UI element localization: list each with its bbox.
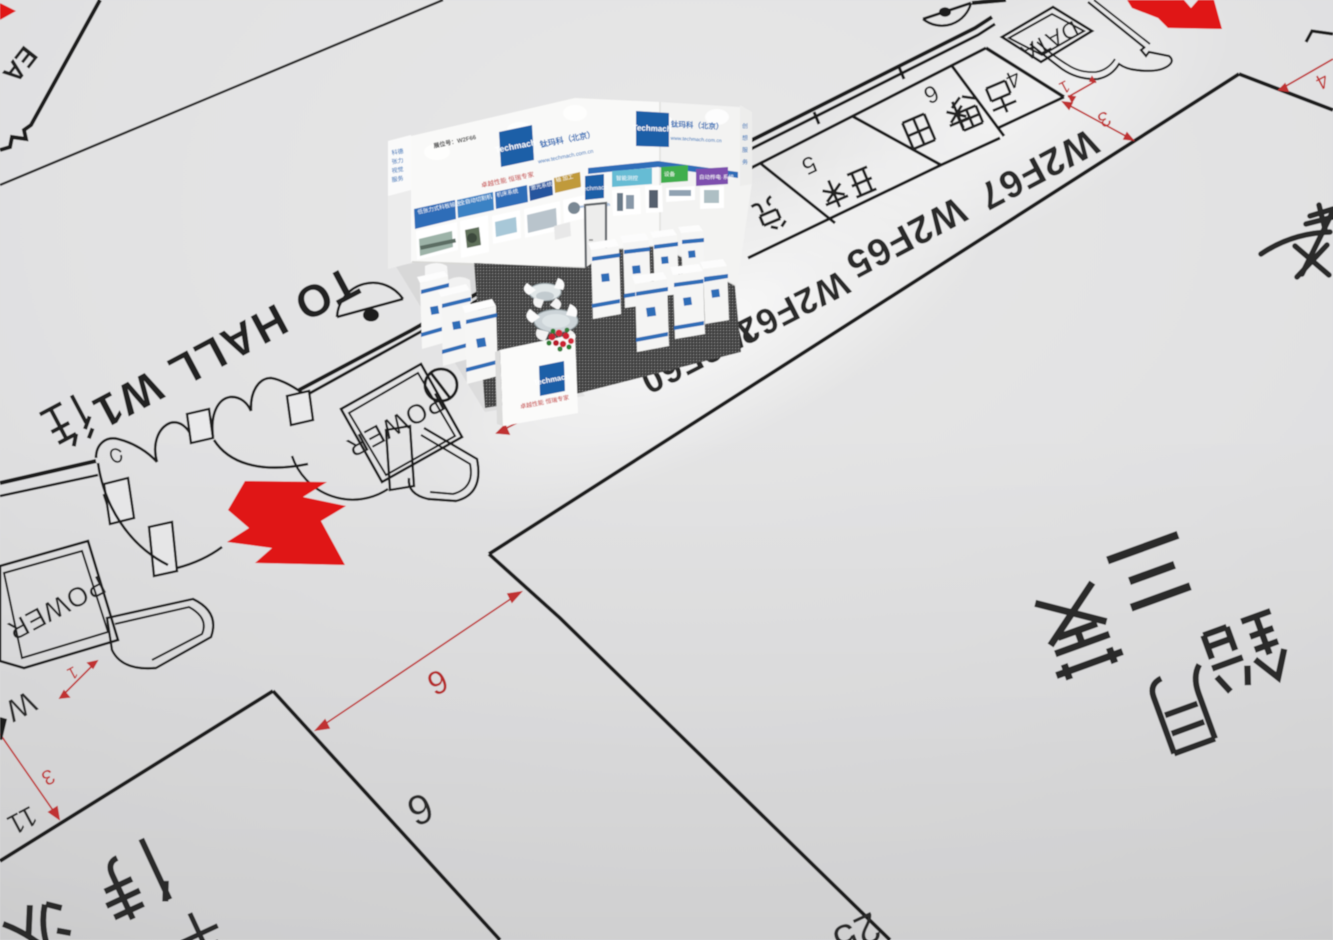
svg-text:创: 创 [742,122,748,130]
svg-text:自动桦电·系统: 自动桦电·系统 [699,174,734,181]
svg-text:务: 务 [742,158,748,166]
svg-text:智能测控: 智能测控 [616,175,639,182]
svg-text:设备: 设备 [664,171,676,178]
svg-text:Techmach: Techmach [632,123,671,133]
svg-text:想: 想 [742,134,748,142]
svg-text:服: 服 [742,147,748,154]
